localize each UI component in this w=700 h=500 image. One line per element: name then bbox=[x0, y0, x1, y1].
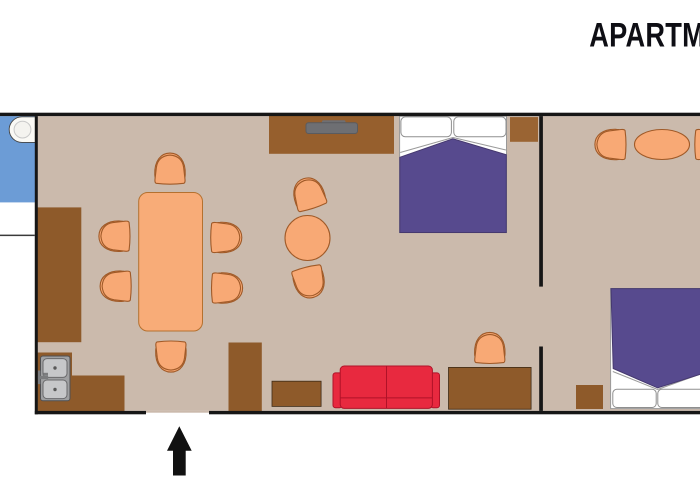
svg-text:APARTMENTS: APARTMENTS bbox=[589, 15, 700, 54]
